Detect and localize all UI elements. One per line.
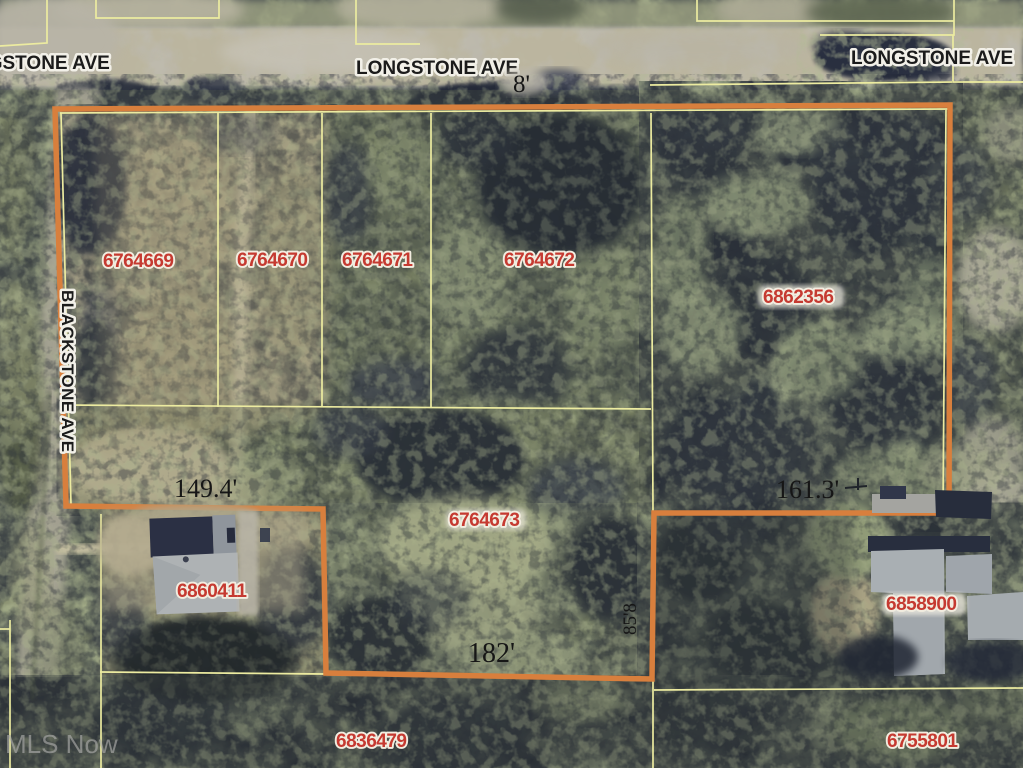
svg-text:85'8: 85'8: [620, 603, 641, 635]
svg-text:6858900: 6858900: [886, 594, 956, 615]
svg-text:LONGSTONE AVE: LONGSTONE AVE: [851, 48, 1013, 69]
svg-text:149.4': 149.4': [174, 474, 237, 503]
svg-text:6755801: 6755801: [887, 731, 958, 752]
svg-text:BLACKSTONE AVE: BLACKSTONE AVE: [58, 290, 77, 453]
svg-text:6860411: 6860411: [177, 581, 247, 602]
svg-text:LONGSTONE AVE: LONGSTONE AVE: [356, 58, 518, 79]
svg-text:NGSTONE AVE: NGSTONE AVE: [0, 53, 110, 74]
svg-text:MLS Now: MLS Now: [5, 729, 118, 759]
svg-text:6764673: 6764673: [449, 510, 519, 531]
svg-text:6836479: 6836479: [336, 731, 406, 752]
svg-text:6764672: 6764672: [504, 250, 574, 271]
svg-text:182': 182': [468, 638, 515, 669]
svg-text:6764670: 6764670: [237, 250, 307, 271]
svg-text:6764671: 6764671: [342, 250, 413, 271]
svg-text:161.3': 161.3': [776, 475, 839, 504]
svg-text:6764669: 6764669: [103, 251, 173, 272]
svg-text:6862356: 6862356: [763, 287, 833, 308]
svg-text:8': 8': [513, 71, 530, 98]
